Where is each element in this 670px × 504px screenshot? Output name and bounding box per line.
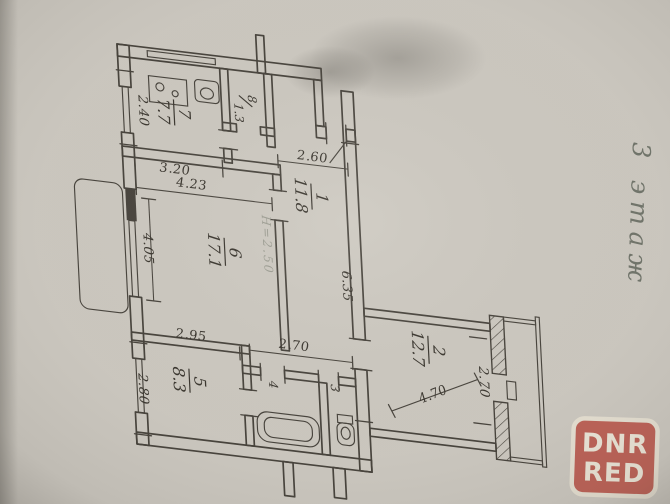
watermark-logo: DNR RED	[571, 418, 658, 497]
dim-room5-depth: 2.80	[134, 372, 151, 406]
loggia-hatched-wall	[489, 315, 506, 375]
floor-plan-photo: 7 7.7 8 1.3 1 11.8 6 17.1 5 8.3 2 12.7	[0, 0, 670, 504]
room-5-area: 8.3	[169, 366, 189, 394]
dim-kitchen-depth: 2.40	[134, 93, 151, 127]
loggia-hatched-wall-2	[494, 401, 511, 461]
room-2-number: 2	[429, 344, 448, 357]
watermark-line1: DNR	[581, 428, 648, 460]
floor-note: 3 этаж	[622, 142, 656, 290]
watermark-line2: RED	[582, 457, 645, 489]
dim-corridor-length: 6.35	[338, 270, 354, 303]
dim-room6-depth: 4.05	[139, 231, 156, 265]
room-2-area: 12.7	[408, 330, 429, 369]
floor-plan-scan: 7 7.7 8 1.3 1 11.8 6 17.1 5 8.3 2 12.7	[0, 0, 670, 504]
dim-room2-width: 2.70	[475, 365, 492, 399]
balcony-door	[125, 188, 137, 221]
room-7-area: 7.7	[153, 97, 173, 125]
room-6-area: 17.1	[204, 232, 225, 270]
photo-shadow-2	[285, 46, 375, 98]
room-1-area: 11.8	[291, 176, 312, 214]
room-4-number: 4	[266, 379, 280, 389]
room-8-area: 1.3	[231, 102, 246, 123]
